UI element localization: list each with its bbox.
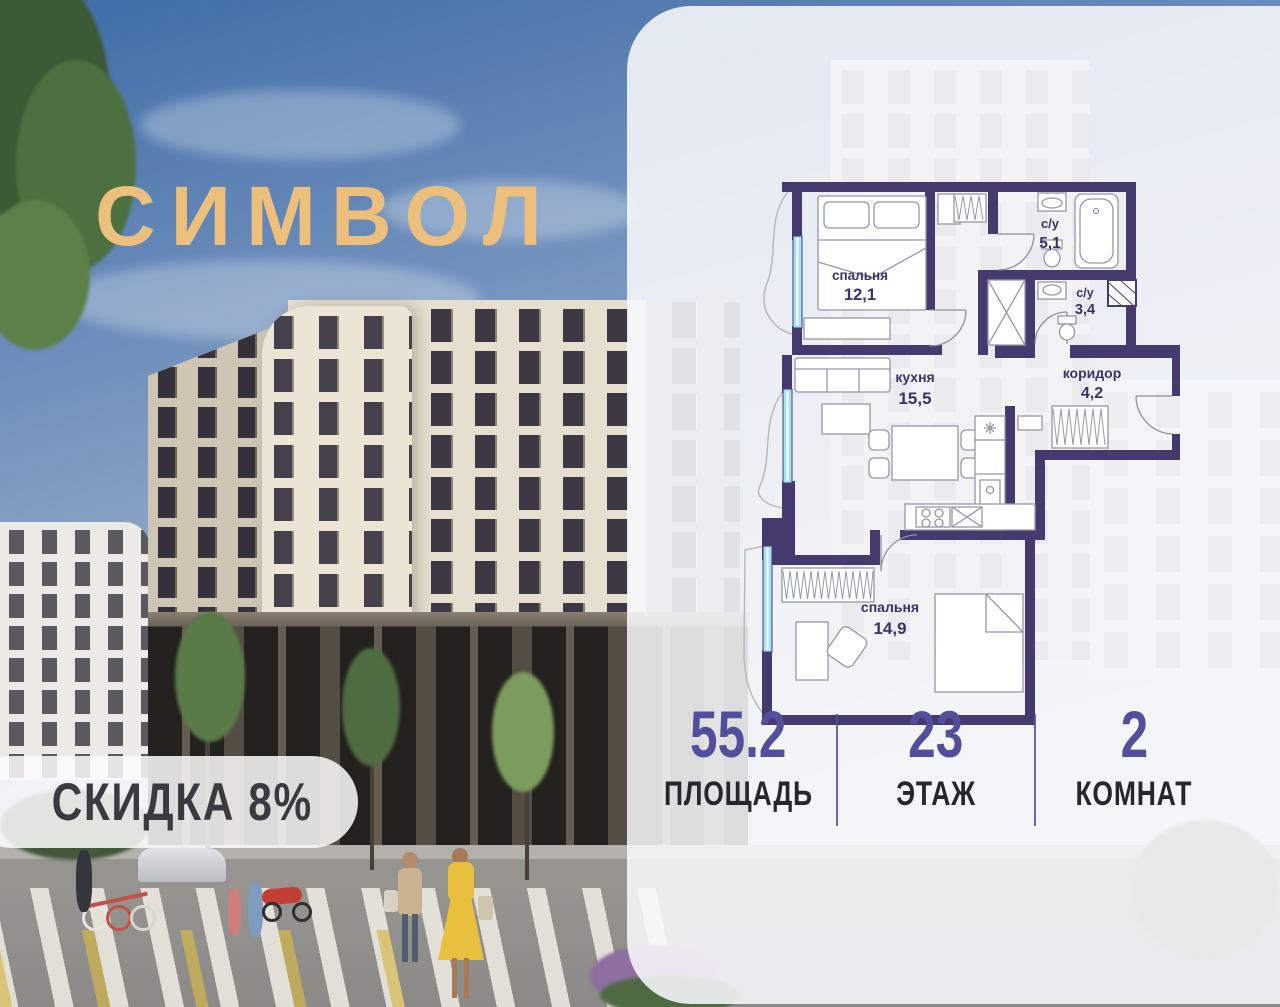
room-area: 4,2 [1081, 385, 1103, 402]
car [138, 848, 226, 882]
tree [342, 648, 400, 766]
pedestrian [76, 850, 92, 912]
shopping-bag [478, 896, 493, 920]
stat-floor-label: ЭТАЖ [896, 775, 976, 814]
moped-wheel [262, 902, 282, 922]
tree [175, 612, 245, 742]
duct-shaft [1108, 280, 1136, 306]
toilet-bowl [1060, 324, 1075, 340]
pedestrian-head [402, 852, 418, 868]
listing-card: СИМВОЛ СКИДКА 8% [0, 0, 1280, 1007]
brand-logo: СИМВОЛ [95, 168, 545, 265]
stat-floor-value: 23 [908, 700, 963, 769]
room-area: 14,9 [873, 619, 906, 638]
room-area: 12,1 [844, 286, 876, 304]
pedestrian-leg [412, 914, 418, 962]
shopping-bag [384, 890, 398, 912]
room-area: 3,4 [1075, 302, 1095, 318]
room-label: с/у [1041, 216, 1060, 231]
stats-divider [1034, 714, 1036, 826]
pedestrian-leg [402, 914, 408, 962]
floorplan: спальня 12,1 с/у 5,1 с/у 3,4 кухня 15,5 … [740, 178, 1180, 736]
coffee-table [822, 404, 870, 434]
stats-divider [836, 714, 838, 826]
stat-area-label: ПЛОЩАДЬ [664, 775, 813, 814]
room-label: спальня [861, 599, 919, 615]
pedestrian-leg [464, 958, 469, 998]
tree [492, 672, 554, 792]
pedestrian-body [398, 868, 422, 916]
room-label: спальня [832, 268, 888, 283]
bench [1018, 416, 1042, 430]
stat-rooms-value: 2 [1120, 700, 1148, 769]
pillow [874, 202, 919, 228]
room-label: кухня [895, 369, 934, 385]
building-far-left [0, 522, 150, 780]
chair [869, 430, 889, 450]
moped-wheel [292, 902, 312, 922]
room-area: 5,1 [1039, 235, 1061, 252]
desk [796, 622, 828, 680]
room-area: 15,5 [898, 389, 931, 408]
desk-chair [825, 624, 869, 669]
pillow [824, 202, 869, 228]
sofa [795, 358, 890, 392]
building-center-tower [262, 306, 412, 638]
pedestrian [228, 888, 241, 936]
apartment-stats: 55.2 ПЛОЩАДЬ 23 ЭТАЖ 2 КОМНАТ [640, 700, 1240, 850]
stat-area: 55.2 ПЛОЩАДЬ [640, 700, 836, 850]
toilet-tank [1058, 316, 1076, 324]
discount-badge: СКИДКА 8% [0, 756, 358, 848]
pedestrian [248, 882, 263, 937]
discount-badge-label: СКИДКА 8% [51, 772, 312, 833]
stat-rooms: 2 КОМНАТ [1036, 700, 1232, 850]
stat-rooms-label: КОМНАТ [1076, 775, 1193, 814]
bicycle-wheel [106, 905, 132, 931]
stat-floor: 23 ЭТАЖ [838, 700, 1034, 850]
pedestrian-leg [452, 958, 457, 998]
dining-table [892, 426, 958, 480]
pedestrian-body-yellow-dress [448, 862, 474, 902]
stat-area-value: 55.2 [690, 700, 786, 769]
dresser [804, 318, 890, 339]
chair [869, 458, 889, 478]
room-label: с/у [1076, 286, 1093, 300]
crosswalk-yellow-stripes [0, 930, 430, 1007]
bed-single [935, 594, 1023, 692]
room-label: коридор [1063, 365, 1122, 381]
cloud [140, 90, 460, 160]
bicycle-wheel [130, 905, 156, 931]
